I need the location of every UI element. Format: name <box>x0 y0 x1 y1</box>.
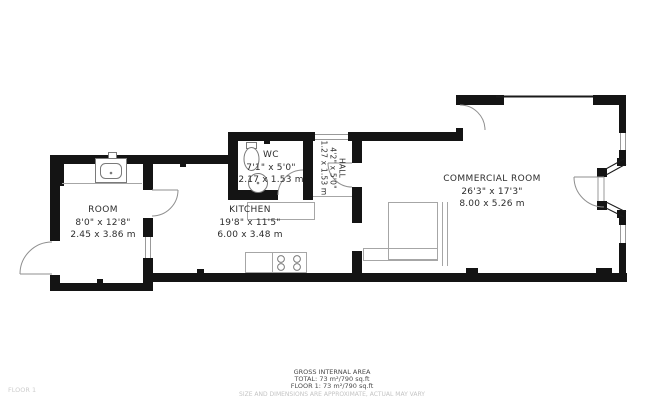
door-arc-commercial-side <box>460 105 485 130</box>
area-summary: GROSS INTERNAL AREA TOTAL: 73 m²/790 sq.… <box>230 369 434 398</box>
room-label-hall: HALL 4'2" x 5'0" 1.27 x 1.53 m <box>320 141 347 196</box>
bay-window-lower <box>604 207 624 217</box>
room-dims-imperial: 26'3" x 17'3" <box>412 186 572 199</box>
room-dims-metric: 1.27 x 1.53 m <box>320 141 329 196</box>
room-dims-metric: 2.17 x 1.53 m <box>211 174 331 187</box>
floor-tag: FLOOR 1 <box>8 386 36 394</box>
room-dims-metric: 2.45 x 3.86 m <box>43 229 163 242</box>
room-name: HALL <box>338 141 347 196</box>
room-label-wc: WC 7'1" x 5'0" 2.17 x 1.53 m <box>211 149 331 187</box>
stove-burner <box>278 256 285 263</box>
bay-window-upper <box>604 159 624 170</box>
floorplan-canvas: ROOM 8'0" x 12'8" 2.45 x 3.86 m WC 7'1" … <box>0 0 650 406</box>
room-name: ROOM <box>43 204 163 217</box>
room-dims-metric: 6.00 x 3.48 m <box>190 229 310 242</box>
room-dims-imperial: 4'2" x 5'0" <box>329 141 338 196</box>
area-floor: FLOOR 1: 73 m²/790 sq.ft <box>230 383 434 390</box>
room-dims-imperial: 8'0" x 12'8" <box>43 217 163 230</box>
bay-window-lower <box>606 202 626 212</box>
room-name: COMMERCIAL ROOM <box>412 173 572 186</box>
room-dims-imperial: 7'1" x 5'0" <box>211 162 331 175</box>
room-label-commercial: COMMERCIAL ROOM 26'3" x 17'3" 8.00 x 5.2… <box>412 173 572 211</box>
room-name: WC <box>211 149 331 162</box>
room-sink-drain <box>110 172 113 175</box>
stove-burner <box>294 264 301 271</box>
stove <box>273 253 307 273</box>
stove-burner <box>294 256 301 263</box>
room-sink-tap <box>109 153 117 159</box>
room-dims-imperial: 19'8" x 11'5" <box>190 217 310 230</box>
commercial-counter <box>389 203 438 260</box>
door-arc-commercial-entrance <box>574 177 604 207</box>
commercial-counter <box>364 249 438 261</box>
room-label-kitchen: KITCHEN 19'8" x 11'5" 6.00 x 3.48 m <box>190 204 310 242</box>
door-arc-room-exterior <box>20 242 52 274</box>
stove-burner <box>278 264 285 271</box>
room-label-room: ROOM 8'0" x 12'8" 2.45 x 3.86 m <box>43 204 163 242</box>
room-dims-metric: 8.00 x 5.26 m <box>412 198 572 211</box>
room-name: KITCHEN <box>190 204 310 217</box>
kitchen-counter-bottom <box>246 253 273 273</box>
disclaimer: SIZE AND DIMENSIONS ARE APPROXIMATE, ACT… <box>230 391 434 398</box>
bay-window-upper <box>606 164 626 175</box>
